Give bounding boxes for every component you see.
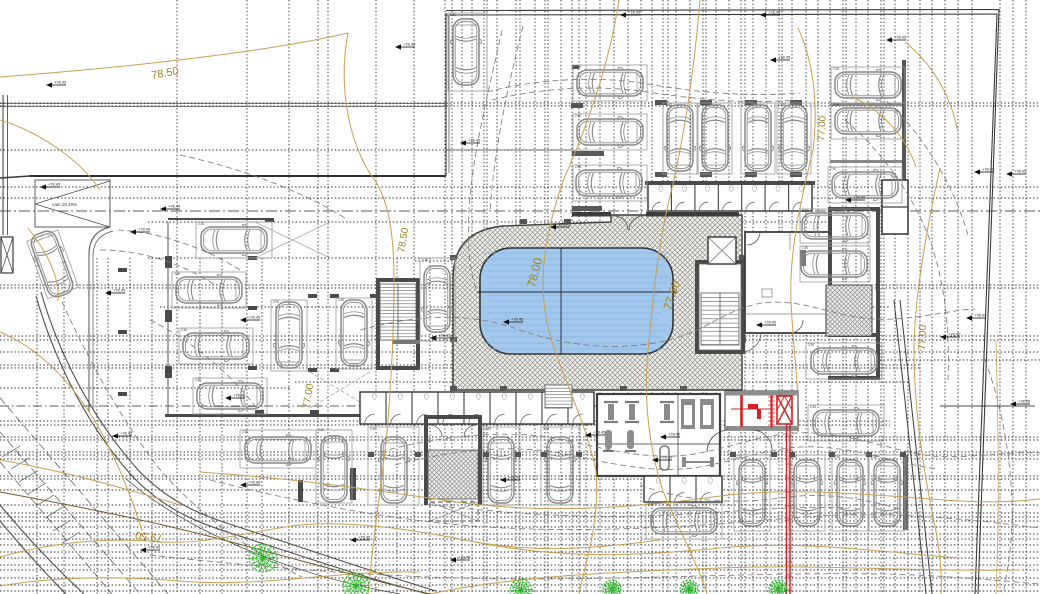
svg-text:2.50: 2.50 xyxy=(318,428,324,432)
svg-text:2.50: 2.50 xyxy=(744,103,750,107)
svg-text:+78.45: +78.45 xyxy=(438,333,451,338)
svg-text:2.50: 2.50 xyxy=(338,298,344,302)
svg-text:2.50: 2.50 xyxy=(575,114,581,118)
svg-text:+78.45: +78.45 xyxy=(1014,169,1027,174)
svg-text:+78.45: +78.45 xyxy=(148,545,161,550)
svg-text:+78.45: +78.45 xyxy=(764,320,777,325)
svg-text:77.00: 77.00 xyxy=(816,115,829,141)
svg-text:2.50: 2.50 xyxy=(450,13,456,17)
svg-text:2.50: 2.50 xyxy=(181,328,187,332)
svg-text:2.50: 2.50 xyxy=(575,165,581,169)
svg-text:+78.45: +78.45 xyxy=(778,55,791,60)
svg-text:2.50: 2.50 xyxy=(871,455,877,459)
svg-text:2.50: 2.50 xyxy=(273,300,279,304)
svg-text:2.50: 2.50 xyxy=(422,258,428,262)
svg-text:+78.45: +78.45 xyxy=(511,317,524,322)
svg-text:77.00: 77.00 xyxy=(917,324,929,350)
svg-text:2.50: 2.50 xyxy=(810,405,816,409)
svg-text:+78.45: +78.45 xyxy=(668,432,681,437)
svg-text:+78.45: +78.45 xyxy=(54,80,67,85)
svg-text:+78.45: +78.45 xyxy=(168,204,181,209)
svg-text:+78.45: +78.45 xyxy=(558,222,571,227)
svg-text:2.50: 2.50 xyxy=(648,503,654,507)
svg-text:2.50: 2.50 xyxy=(543,427,549,431)
svg-text:2.50: 2.50 xyxy=(485,427,491,431)
svg-text:+78.45: +78.45 xyxy=(1018,399,1031,404)
svg-text:+78.45: +78.45 xyxy=(233,393,246,398)
svg-text:+78.45: +78.45 xyxy=(948,332,961,337)
svg-text:2.50: 2.50 xyxy=(195,378,201,382)
svg-text:+78.45: +78.45 xyxy=(403,42,416,47)
svg-text:cam 19.19%: cam 19.19% xyxy=(52,202,77,207)
svg-text:2.50: 2.50 xyxy=(701,103,707,107)
svg-text:2.50: 2.50 xyxy=(780,103,786,107)
svg-text:2.50: 2.50 xyxy=(802,246,808,250)
svg-text:+78.45: +78.45 xyxy=(48,182,61,187)
svg-text:+78.45: +78.45 xyxy=(248,480,261,485)
svg-text:2.50: 2.50 xyxy=(802,209,808,213)
svg-text:2.50: 2.50 xyxy=(834,455,840,459)
svg-text:+78.45: +78.45 xyxy=(768,10,781,15)
svg-text:+78.45: +78.45 xyxy=(982,167,995,172)
svg-text:2.50: 2.50 xyxy=(370,427,376,431)
svg-text:2.50: 2.50 xyxy=(833,103,839,107)
svg-text:2.50: 2.50 xyxy=(198,222,204,226)
svg-text:+78.45: +78.45 xyxy=(660,455,673,460)
svg-text:+78.45: +78.45 xyxy=(628,10,641,15)
svg-text:+78.45: +78.45 xyxy=(894,35,907,40)
svg-text:+78.45: +78.45 xyxy=(853,195,866,200)
svg-text:2.50: 2.50 xyxy=(791,455,797,459)
svg-text:+78.45: +78.45 xyxy=(358,535,371,540)
svg-text:2.50: 2.50 xyxy=(808,343,814,347)
svg-text:+78.45: +78.45 xyxy=(508,475,521,480)
svg-text:+78.45: +78.45 xyxy=(468,138,481,143)
svg-text:2.50: 2.50 xyxy=(736,455,742,459)
svg-text:2.50: 2.50 xyxy=(575,65,581,69)
svg-text:2.50: 2.50 xyxy=(830,167,836,171)
svg-text:+78.45: +78.45 xyxy=(248,315,261,320)
svg-text:+78.45: +78.45 xyxy=(974,313,987,318)
svg-text:+78.45: +78.45 xyxy=(113,288,126,293)
svg-text:+78.45: +78.45 xyxy=(458,555,471,560)
svg-text:+78.45: +78.45 xyxy=(593,430,606,435)
svg-text:+78.45: +78.45 xyxy=(120,431,133,436)
svg-text:2.50: 2.50 xyxy=(242,430,248,434)
svg-text:+78.45: +78.45 xyxy=(138,227,151,232)
svg-text:2.50: 2.50 xyxy=(666,103,672,107)
svg-text:2.50: 2.50 xyxy=(833,67,839,71)
svg-text:2.50: 2.50 xyxy=(174,272,180,276)
